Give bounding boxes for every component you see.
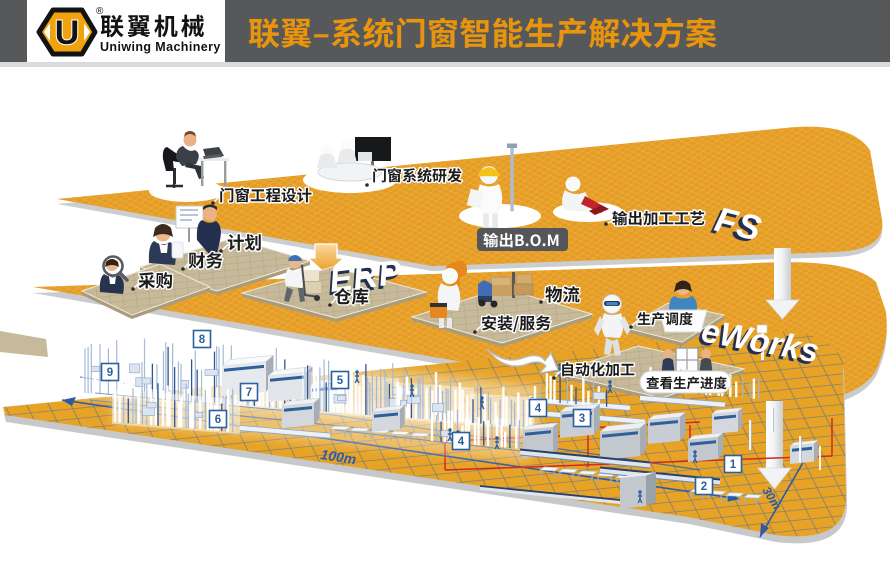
svg-text:2: 2 <box>701 481 707 493</box>
svg-text:8: 8 <box>199 334 206 346</box>
svg-text:7: 7 <box>246 387 252 399</box>
svg-text:4: 4 <box>458 436 465 448</box>
svg-text:5: 5 <box>337 375 344 387</box>
svg-text:6: 6 <box>215 414 221 426</box>
svg-text:1: 1 <box>730 459 737 471</box>
svg-text:®: ® <box>96 6 104 17</box>
svg-text:9: 9 <box>107 367 113 379</box>
svg-text:Uniwing Machinery: Uniwing Machinery <box>100 40 221 54</box>
svg-text:4: 4 <box>535 403 542 415</box>
svg-text:3: 3 <box>579 413 585 425</box>
svg-text:U: U <box>55 14 80 52</box>
